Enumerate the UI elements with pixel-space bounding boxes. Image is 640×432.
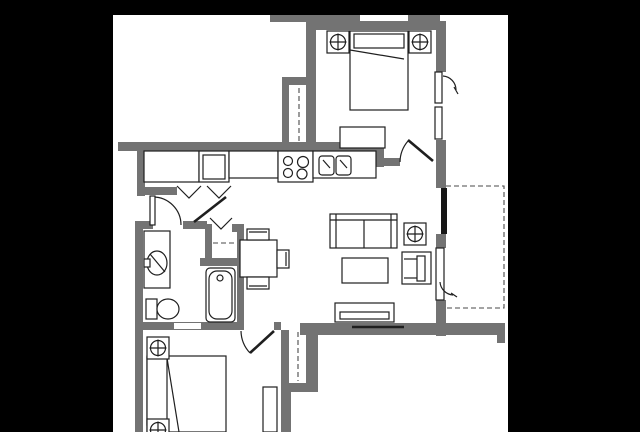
wall-segment [205,224,212,263]
dining-chair [247,229,269,240]
ceiling-fixture [327,31,349,53]
wall-segment [408,15,440,22]
door-leaf-open-bottom [263,387,277,432]
wall-segment [274,322,281,330]
wall-segment [137,187,177,195]
black-bar-top [0,0,640,15]
dresser-bench [340,127,385,148]
wall-segment [436,140,446,188]
range [278,151,313,182]
ceiling-fixture [409,31,431,53]
bathtub [206,268,235,322]
wall-segment [436,234,446,248]
wall-segment [282,77,289,148]
wall-segment [281,383,318,392]
counter-left [144,151,199,182]
dining-chair [277,250,289,268]
wall-segment [306,330,318,392]
wall-segment [497,333,505,343]
window-upper-bedroom [435,107,442,139]
kitchen-fixtures [144,151,376,182]
wall-segment [281,330,289,383]
coffee-table [342,258,388,283]
window-living-room [436,248,444,300]
bed-headboard [147,357,167,425]
door-leaf-bathroom [150,196,155,225]
wall-segment [200,258,244,266]
window-upper-bedroom [435,72,442,103]
floor-plan-image [0,0,640,432]
counter-mid [229,151,278,178]
bed-pillow [354,34,404,48]
dining-chair [247,277,269,289]
vanity-faucet [144,259,150,267]
wall-segment [306,21,446,30]
black-bar-left [0,0,113,432]
wall-niche [174,323,201,329]
floor-plan-svg [0,0,640,432]
toilet-tank [146,299,157,319]
window-dark-living [441,188,447,234]
toilet-bowl [157,299,179,319]
ceiling-fixture [404,223,426,245]
wall-segment [376,158,400,166]
wall-segment [281,392,291,432]
dining-table [240,240,277,277]
wall-segment [436,21,446,72]
wall-segment [270,15,360,22]
ceiling-fixture [147,337,169,359]
wall-segment [300,323,505,335]
black-bar-right [508,0,640,432]
ceiling-fixture [147,419,169,432]
